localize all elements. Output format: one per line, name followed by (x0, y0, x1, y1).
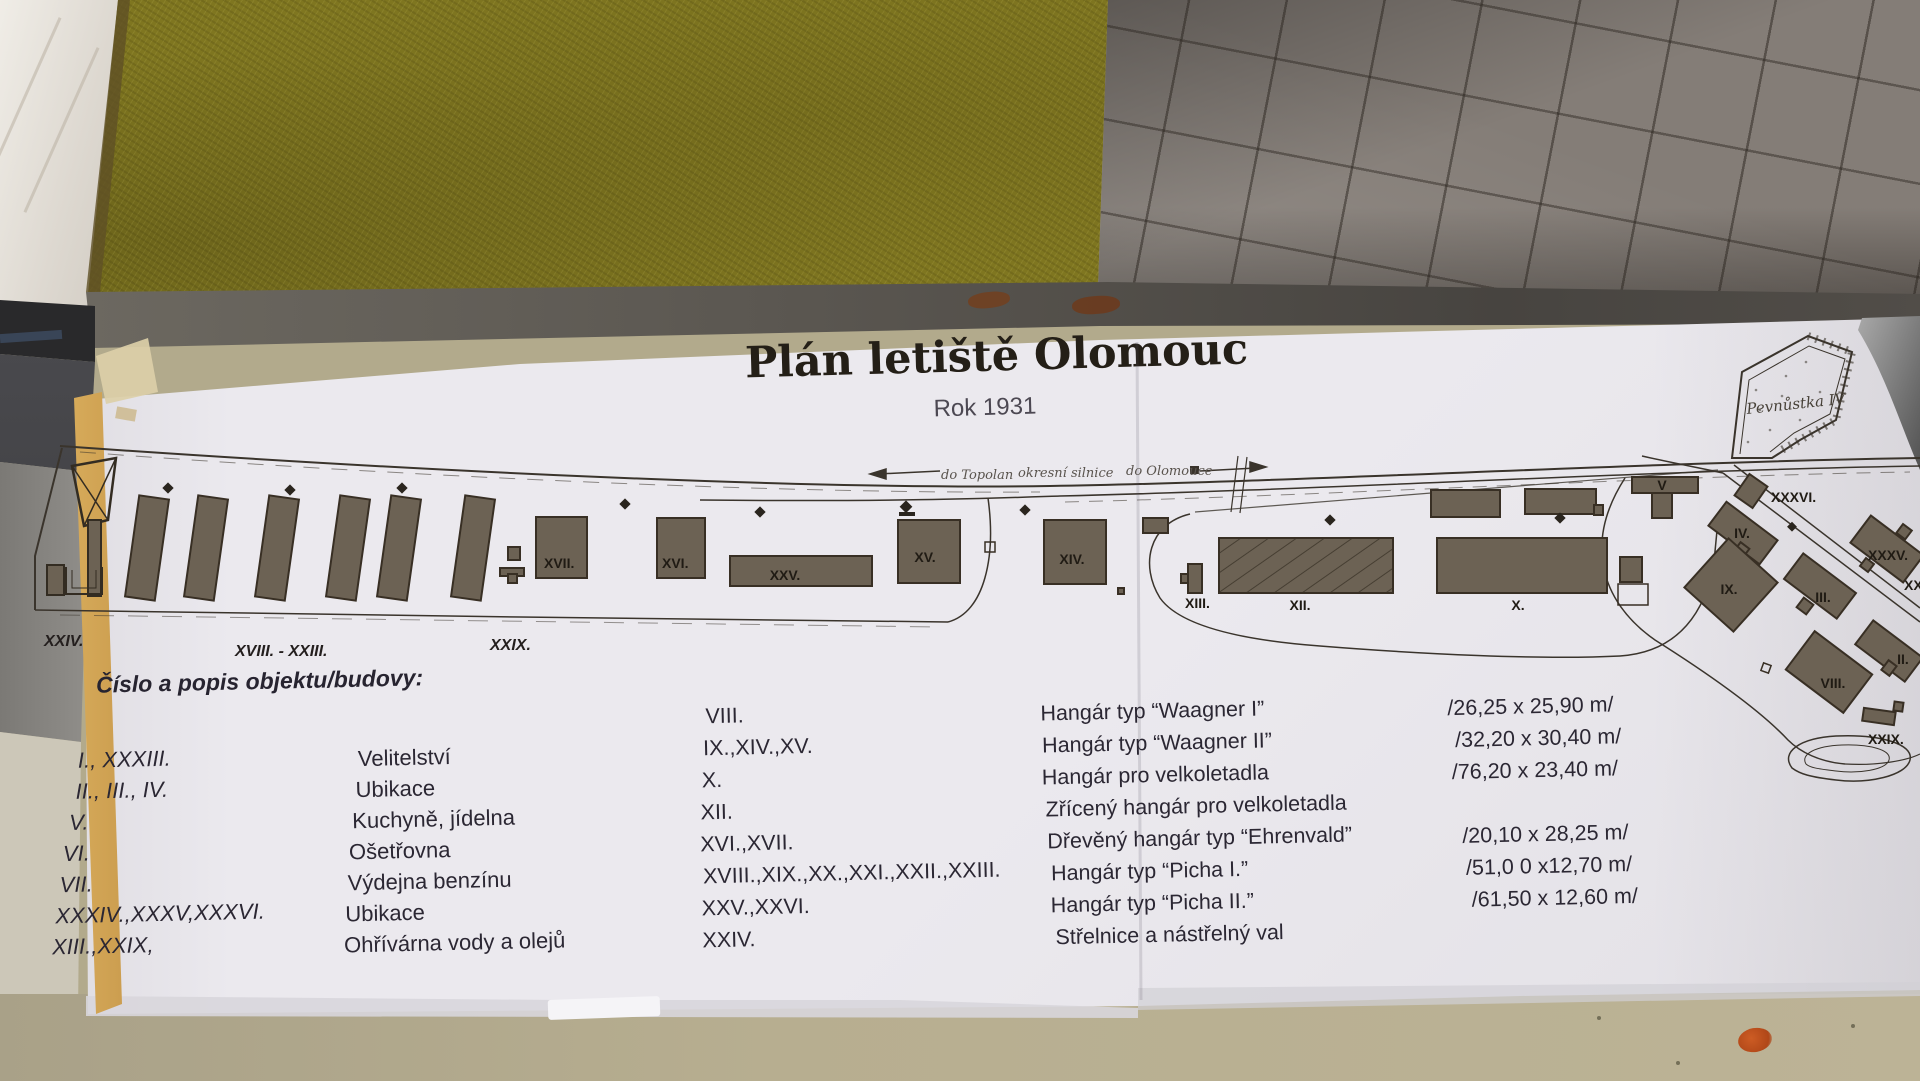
legend-cell: /61,50 x 12,60 m/ (1471, 884, 1638, 920)
building-xii-ruined (1219, 538, 1393, 593)
buildings-strip (536, 477, 1698, 605)
legend-cell: XXXIV.,XXXV,XXXVI. (55, 899, 265, 935)
legend-cell: /32,20 x 30,40 m/ (1455, 724, 1635, 760)
legend-right-numbers: VIII. IX.,XIV.,XV. X. XII. XVI.,XVII. XV… (697, 698, 1002, 961)
legend-cell: /76,20 x 23,40 m/ (1452, 756, 1636, 792)
legend-right-names: Hangár typ “Waagner I” Hangár typ “Waagn… (1040, 695, 1354, 958)
building-iii (1784, 553, 1856, 618)
legend-cell (1452, 916, 1639, 952)
legend-cell: Velitelství (358, 742, 562, 778)
legend-cell: Ošetřovna (349, 834, 564, 870)
buildings-cluster (1684, 474, 1920, 725)
strip-label-xviii-xxiii: XVIII. - XXIII. (234, 643, 327, 660)
label-xxxiv-clipped: XXXIV. (1904, 577, 1920, 593)
legend-cell: /51,0 0 x12,70 m/ (1466, 852, 1638, 888)
fort-pevnustka: Pevnůstka IV (1732, 336, 1852, 458)
map-photo-area (1858, 316, 1920, 470)
legend-cell: Výdejna benzínu (347, 865, 564, 901)
label-iv: IV. (1734, 525, 1750, 541)
legend-cell: /20,10 x 28,25 m/ (1462, 820, 1637, 856)
label-xvii: XVII. (544, 555, 574, 571)
building-x (1437, 538, 1607, 593)
road-label-west: do Topolan (941, 468, 1013, 483)
label-viii: VIII. (1821, 675, 1846, 691)
legend-cell: XIII.,XXIX, (52, 930, 266, 966)
label-xxix-cluster: XXIX. (1868, 731, 1904, 747)
legend-right-dimensions: /26,25 x 25,90 m/ /32,20 x 30,40 m/ /76,… (1447, 692, 1639, 952)
strip-label-xxiv: XXIV. (43, 633, 83, 650)
hangar-row-picha (125, 495, 524, 600)
label-v: V (1657, 477, 1667, 493)
legend-cell: Ohřívárna vody a olejů (344, 927, 566, 963)
legend-cell (1449, 788, 1636, 824)
legend-cell: Ubikace (355, 773, 562, 809)
label-ix: IX. (1720, 581, 1737, 597)
legend-cell: II., III., IV. (75, 775, 262, 810)
legend-cell: /26,25 x 25,90 m/ (1447, 692, 1634, 728)
legend-cell: VI. (63, 837, 264, 873)
legend-cell: Ubikace (345, 896, 565, 932)
legend-cell: XXIV. (702, 922, 1002, 961)
label-xiv: XIV. (1059, 551, 1084, 567)
legend-cell: Střelnice a nástřelný val (1055, 918, 1354, 957)
label-ii: II. (1897, 651, 1909, 667)
building-xxv (730, 556, 872, 586)
shooting-range-structure (47, 458, 116, 596)
legend-cell: V. (69, 806, 263, 841)
label-xii: XII. (1289, 597, 1310, 613)
legend-cell: I., XXXIII. (78, 744, 262, 779)
label-xxxv: XXXV. (1868, 547, 1908, 563)
building-xiii (1188, 564, 1202, 593)
strip-label-xxix: XXIX. (489, 637, 531, 654)
label-xxxvi: XXXVI. (1771, 489, 1816, 505)
exhibit-photo: Plán letiště Olomouc Rok 1931 (0, 0, 1920, 1081)
label-x: X. (1511, 597, 1524, 613)
road-label-east: do Olomouce (1126, 464, 1213, 479)
legend-cell: Kuchyně, jídelna (352, 804, 563, 840)
label-xvi: XVI. (662, 555, 688, 571)
legend-cell: VII. (59, 868, 264, 904)
legend-left-numbers: I., XXXIII. II., III., IV. V. VI. VII. X… (48, 744, 266, 966)
legend-left-names: Velitelství Ubikace Kuchyně, jídelna Oše… (340, 742, 566, 964)
label-xxv: XXV. (770, 567, 801, 583)
label-xv: XV. (914, 549, 935, 565)
strip-labels: XXIV. XVIII. - XXIII. XXIX. (43, 633, 531, 660)
fort-label: Pevnůstka IV (1745, 389, 1849, 418)
label-xiii: XIII. (1185, 595, 1210, 611)
label-iii: III. (1815, 589, 1831, 605)
road-label-mid: okresní silnice (1018, 466, 1114, 481)
